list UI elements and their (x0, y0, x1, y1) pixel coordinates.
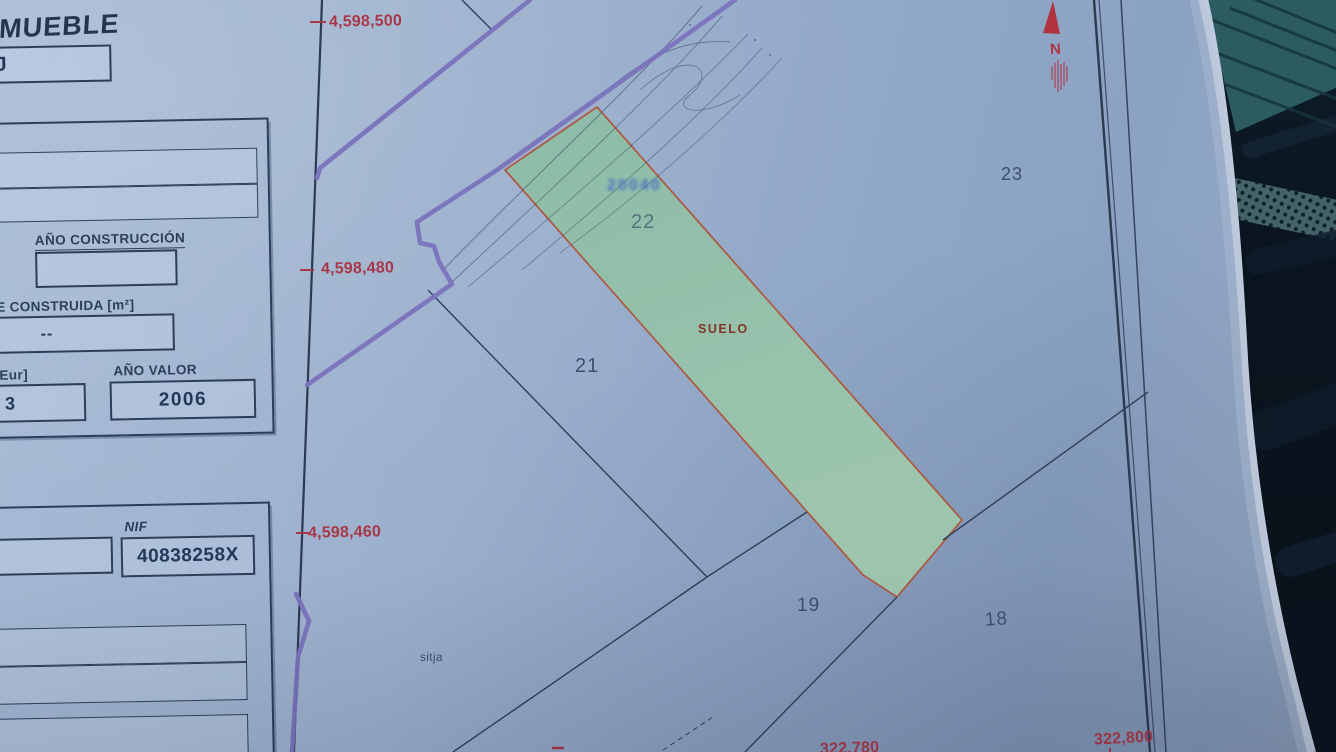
value-eur-label: Eur] (0, 367, 28, 383)
form-row-blank-5 (0, 714, 249, 752)
form-row-blank-4 (0, 662, 248, 705)
form-header-title: NMUEBLE (0, 8, 120, 45)
form-header-box: J (0, 45, 112, 85)
form-panel: NMUEBLE J AÑO CONSTRUCCIÓN E CONSTRUIDA … (0, 0, 1336, 752)
construction-year-label: AÑO CONSTRUCCIÓN (35, 230, 186, 251)
form-row-blank-2 (0, 184, 258, 223)
built-area-box: -- (0, 313, 175, 354)
nif-value-box: 40838258X (121, 535, 256, 578)
value-year-label: AÑO VALOR (113, 362, 197, 379)
form-row-blank-3 (0, 624, 247, 667)
photographed-cadastral-document: 4,598,500 4,598,480 4,598,460 322,780 32… (0, 0, 1336, 752)
nif-label: NIF (124, 519, 147, 534)
value-year-box: 2006 (110, 379, 257, 421)
nif-empty-box (0, 537, 113, 576)
built-area-value: -- (0, 315, 173, 351)
construction-year-value (37, 251, 176, 286)
value-eur-box: 3 (0, 383, 86, 423)
grid-label-322780: 322,780 (820, 739, 880, 752)
nif-value: 40838258X (123, 537, 254, 575)
value-year-value: 2006 (112, 381, 255, 419)
value-eur-value: 3 (0, 385, 84, 421)
form-row-blank-1 (0, 148, 258, 189)
construction-year-box (35, 249, 178, 288)
form-header-box-text: J (0, 47, 110, 83)
built-area-label: E CONSTRUIDA [m²] (0, 297, 135, 315)
